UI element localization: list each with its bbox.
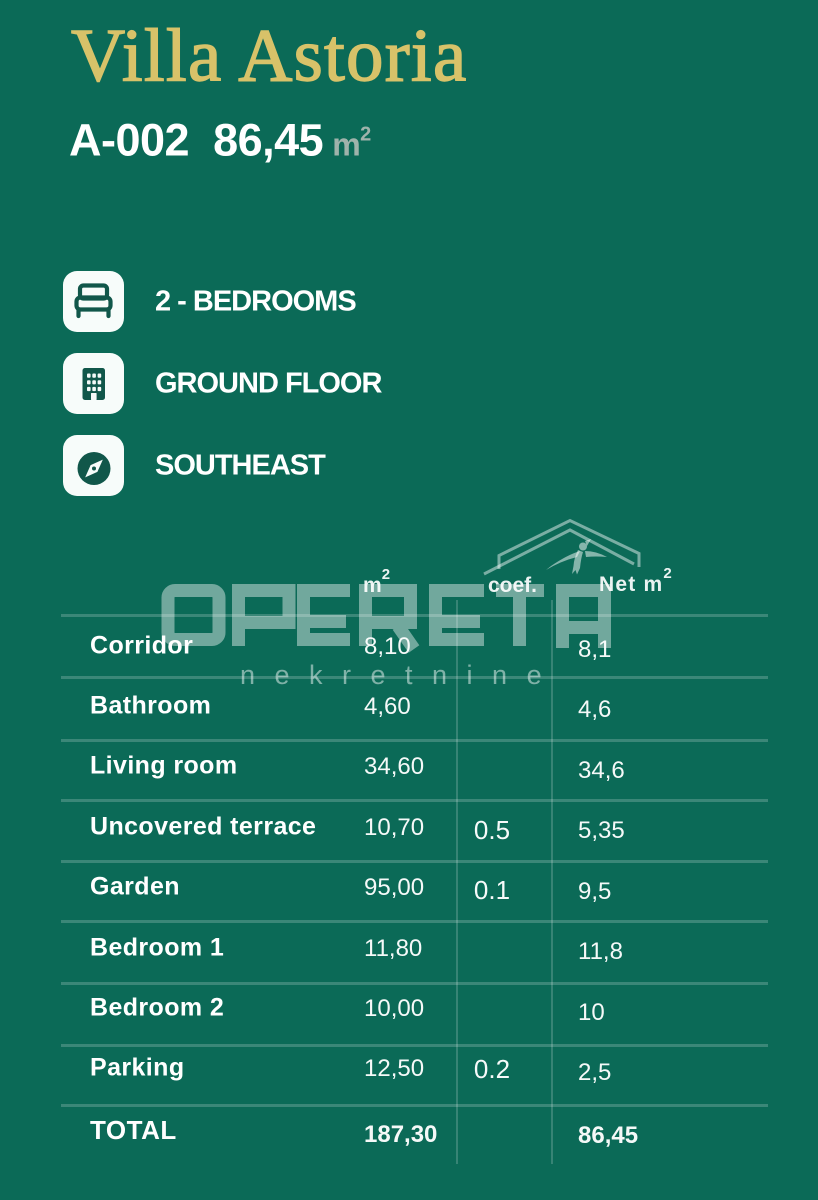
svg-text:nekretnine: nekretnine <box>240 660 561 690</box>
